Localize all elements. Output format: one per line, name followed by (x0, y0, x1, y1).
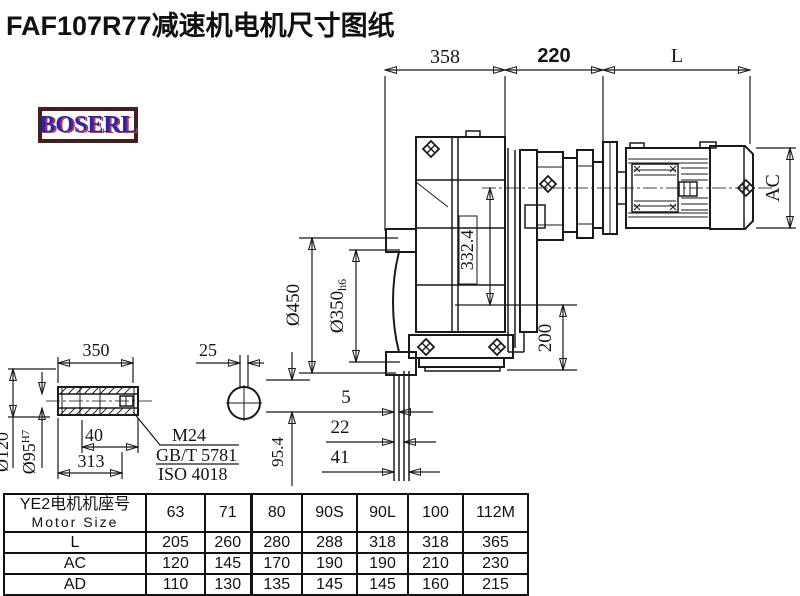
dim-25: 25 (199, 340, 217, 360)
note-gbt: GB/T 5781 (156, 445, 237, 465)
dim-flange-diameters: Ø450 Ø350h6 (283, 238, 400, 373)
eyebolt-icon (423, 141, 439, 157)
table-cell: 230 (463, 553, 528, 574)
input-adapter (508, 148, 603, 352)
table-row-AC: AC 120 145 170 190 190 210 230 (4, 553, 528, 574)
motor-fins (681, 168, 708, 210)
dim-332: 332.4 (457, 230, 477, 271)
note-m24: M24 (172, 425, 206, 445)
dim-AC: AC (762, 174, 784, 202)
dim-dia350h6: Ø350h6 (327, 279, 349, 333)
motor-size-table: YE2电机机座号 Motor Size 63 71 80 90S 90L 100… (3, 493, 529, 596)
dim-dia95h7: Ø95H7 (19, 429, 39, 474)
table-cell: 280 (251, 532, 302, 553)
col-71: 71 (205, 494, 251, 532)
table-cell: 110 (146, 574, 205, 595)
table-header-row: YE2电机机座号 Motor Size 63 71 80 90S 90L 100… (4, 494, 528, 532)
dim-heights: 332.4 200 (455, 188, 577, 370)
dim-dia450: Ø450 (283, 284, 304, 326)
header-cn: YE2电机机座号 (5, 496, 145, 514)
note-iso: ISO 4018 (158, 464, 228, 484)
dim-954: 95.4 (268, 437, 287, 467)
dim-41: 41 (331, 447, 350, 468)
col-63: 63 (146, 494, 205, 532)
eyebolt-icon (540, 176, 556, 192)
table-cell: 205 (146, 532, 205, 553)
table-cell: 135 (251, 574, 302, 595)
dim-200: 200 (535, 324, 556, 353)
table-row-AD: AD 110 130 135 145 145 160 215 (4, 574, 528, 595)
table-cell: 160 (408, 574, 463, 595)
dim-40: 40 (85, 425, 103, 445)
table-cell: 120 (146, 553, 205, 574)
table-cell: 365 (463, 532, 528, 553)
table-cell: 145 (302, 574, 357, 595)
col-100: 100 (408, 494, 463, 532)
dim-dia120: Ø120 (0, 432, 12, 472)
dim-220: 220 (537, 45, 570, 67)
row-label: AD (4, 574, 146, 595)
drawing-page: FAF107R77减速机电机尺寸图纸 BOSERL (0, 0, 800, 596)
table-cell: 210 (408, 553, 463, 574)
table-cell: 260 (205, 532, 251, 553)
row-label: AC (4, 553, 146, 574)
table-cell: 318 (408, 532, 463, 553)
col-90l: 90L (357, 494, 408, 532)
dim-shaft-offsets: 5 22 41 95.4 (266, 352, 440, 486)
center-lines (46, 188, 772, 401)
table-cell: 145 (205, 553, 251, 574)
table-cell: 318 (357, 532, 408, 553)
table-cell: 215 (463, 574, 528, 595)
table-row-L: L 205 260 280 288 318 318 365 (4, 532, 528, 553)
table-cell: 145 (357, 574, 408, 595)
table-cell: 170 (251, 553, 302, 574)
dim-5: 5 (341, 387, 351, 408)
dim-350: 350 (83, 340, 110, 360)
row-label: L (4, 532, 146, 553)
dim-ac: AC (756, 148, 796, 228)
table-cell: 130 (205, 574, 251, 595)
col-112m: 112M (463, 494, 528, 532)
header-en: Motor Size (5, 515, 145, 530)
col-90s: 90S (302, 494, 357, 532)
dim-L: L (671, 45, 683, 67)
eyebolt-icon (418, 339, 434, 355)
shaft-end-view: 25 (196, 340, 264, 421)
col-80: 80 (251, 494, 302, 532)
table-cell: 288 (302, 532, 357, 553)
output-flange (386, 229, 416, 481)
dim-22: 22 (331, 417, 350, 438)
table-cell: 190 (357, 553, 408, 574)
dim-358: 358 (430, 46, 460, 68)
eyebolt-icon (489, 339, 505, 355)
dim-313: 313 (78, 451, 105, 471)
table-header-label: YE2电机机座号 Motor Size (4, 494, 146, 532)
hollow-shaft-detail: 350 Ø120 Ø95H7 40 313 M24 GB/T 5781 (0, 340, 239, 484)
table-cell: 190 (302, 553, 357, 574)
